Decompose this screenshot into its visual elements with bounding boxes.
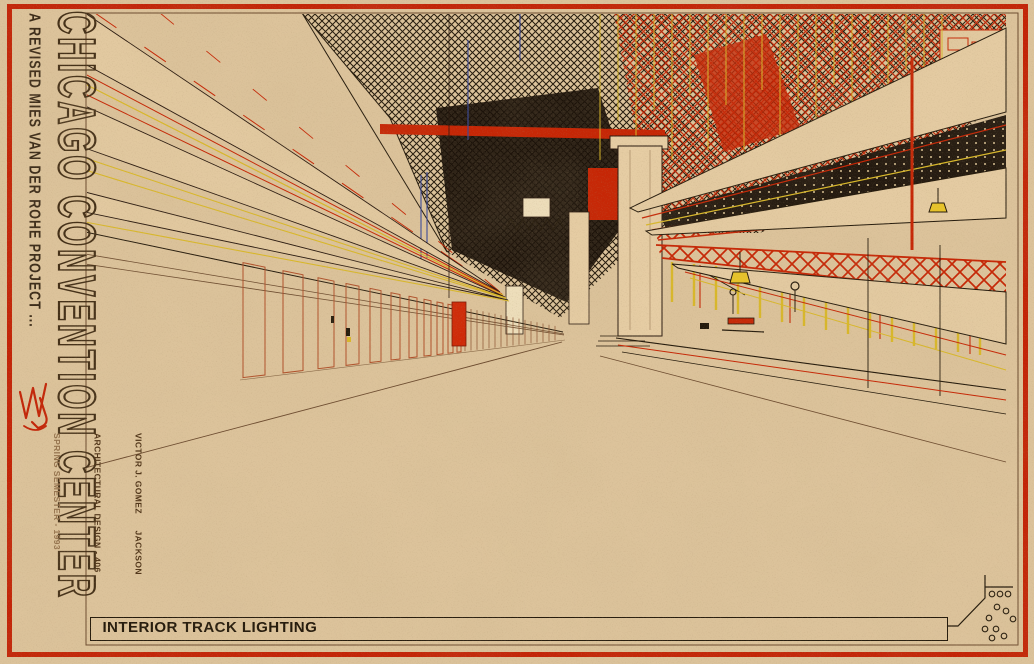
vertical-sheet-subtitle: A REVISED MIES VAN DER ROHE PROJECT ... [26, 13, 43, 328]
drawing-title: INTERIOR TRACK LIGHTING [91, 618, 981, 638]
right-parapet [600, 338, 1006, 462]
credit-line-semester: SPRING SEMESTER - 1993 [49, 433, 63, 575]
title-block-bar: INTERIOR TRACK LIGHTING [90, 617, 948, 641]
floor-benches [700, 318, 764, 332]
credit-line-author: VICTOR J. GOMEZ JACKSON [131, 433, 145, 575]
credit-line-course: ARCHITECTURAL DESIGN - 406 [90, 433, 104, 575]
signature-monogram [20, 384, 47, 430]
credits-block: VICTOR J. GOMEZ JACKSON ARCHITECTURAL DE… [22, 433, 172, 575]
drawing-sheet: CHICAGO CONVENTION CENTER A REVISED MIES… [0, 0, 1034, 664]
